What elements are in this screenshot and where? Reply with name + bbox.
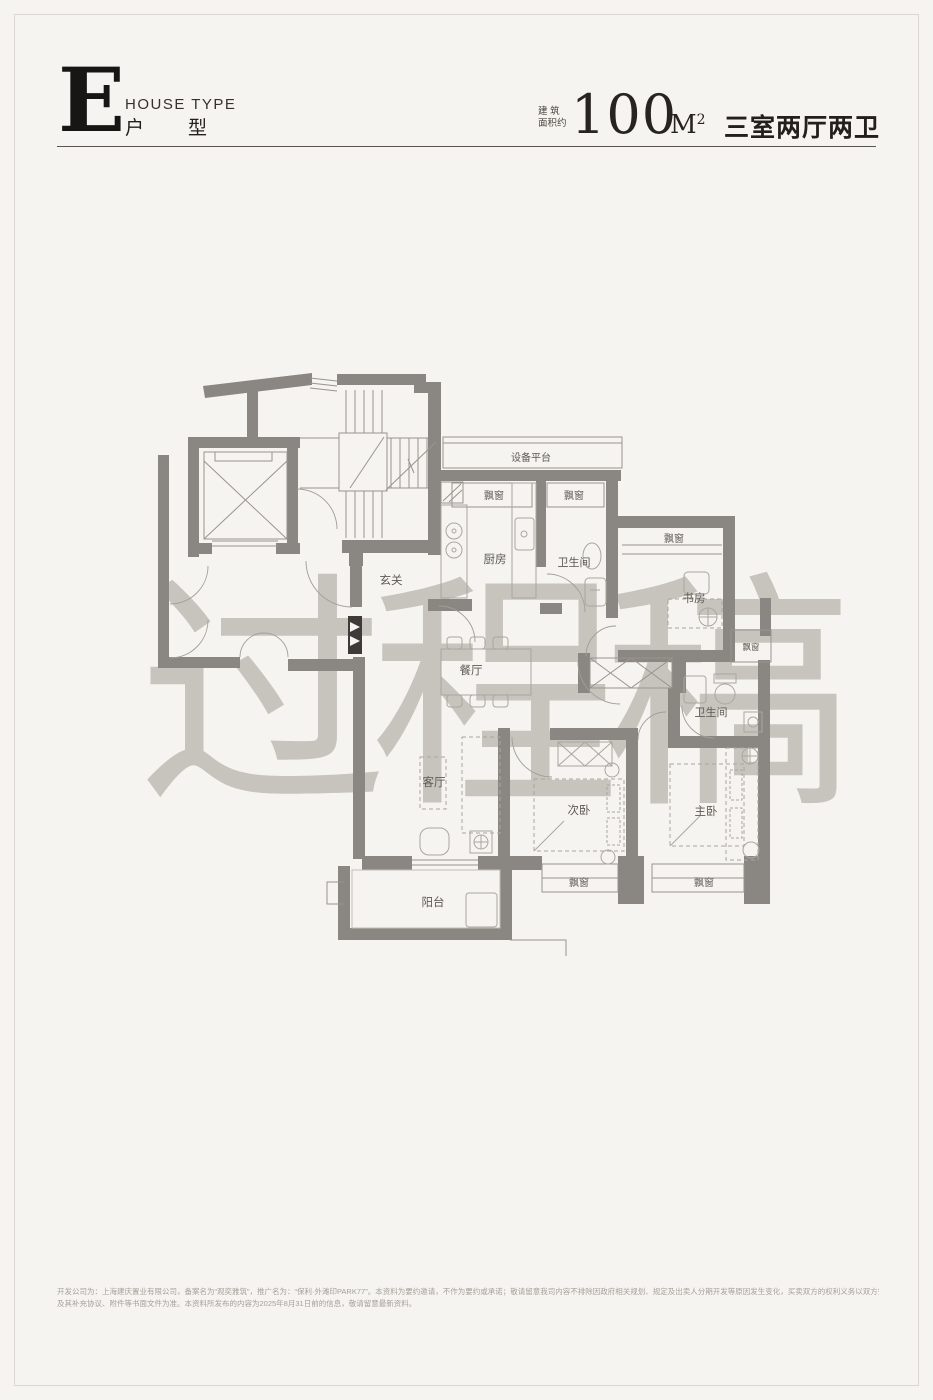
label-bay-window-second: 飘窗 [569,876,589,889]
disclaimer-line2: 及其补充协议、附件等书面文件为准。本资料所发布的内容为2025年8月31日前的信… [57,1298,879,1310]
living-furniture [420,737,500,855]
disclaimer-line1: 开发公司为：上海建庆置业有限公司，备案名为“观奕雅筑”，推广名为：“保利·外滩印… [57,1286,879,1298]
label-living: 客厅 [423,775,446,789]
label-bathroom-master: 卫生间 [695,705,728,719]
shoe-cabinet [348,616,362,654]
bathroom-top-fittings [583,543,606,606]
floorplan-drawing: 设备平台 飘窗 飘窗 厨房 卫生间 飘窗 书房 玄关 飘窗 餐厅 卫生间 客厅 … [0,0,933,1400]
label-bay-window-kitchen: 飘窗 [484,489,504,502]
label-bedroom-master: 主卧 [695,805,718,818]
label-bathroom-top: 卫生间 [558,555,591,569]
master-bedroom-furniture [670,748,759,860]
label-bay-window-bath: 飘窗 [564,489,584,502]
label-bay-window-study: 飘窗 [664,532,684,545]
label-dining: 餐厅 [460,663,483,677]
label-kitchen: 厨房 [484,553,507,566]
washer [466,893,497,927]
elevator-shaft [204,452,287,546]
hall-cabinet [590,658,672,688]
label-bay-window-master: 飘窗 [694,876,714,889]
staircase [300,390,436,538]
label-entry: 玄关 [380,573,403,587]
label-study: 书房 [683,592,706,605]
bathroom-right-fittings [684,674,762,732]
second-bedroom-furniture [534,742,624,864]
label-bay-window-right: 飘窗 [742,642,759,652]
flyer-page: E HOUSE TYPE 户 型 建 筑 面积约 100 M2 三室两厅两卫 过… [0,0,933,1400]
walls [158,373,771,940]
disclaimer: 开发公司为：上海建庆置业有限公司，备案名为“观奕雅筑”，推广名为：“保利·外滩印… [57,1286,879,1310]
dining-set [441,637,531,707]
label-bedroom-second: 次卧 [568,803,591,817]
label-equipment-platform: 设备平台 [511,451,551,464]
label-balcony: 阳台 [422,895,445,909]
